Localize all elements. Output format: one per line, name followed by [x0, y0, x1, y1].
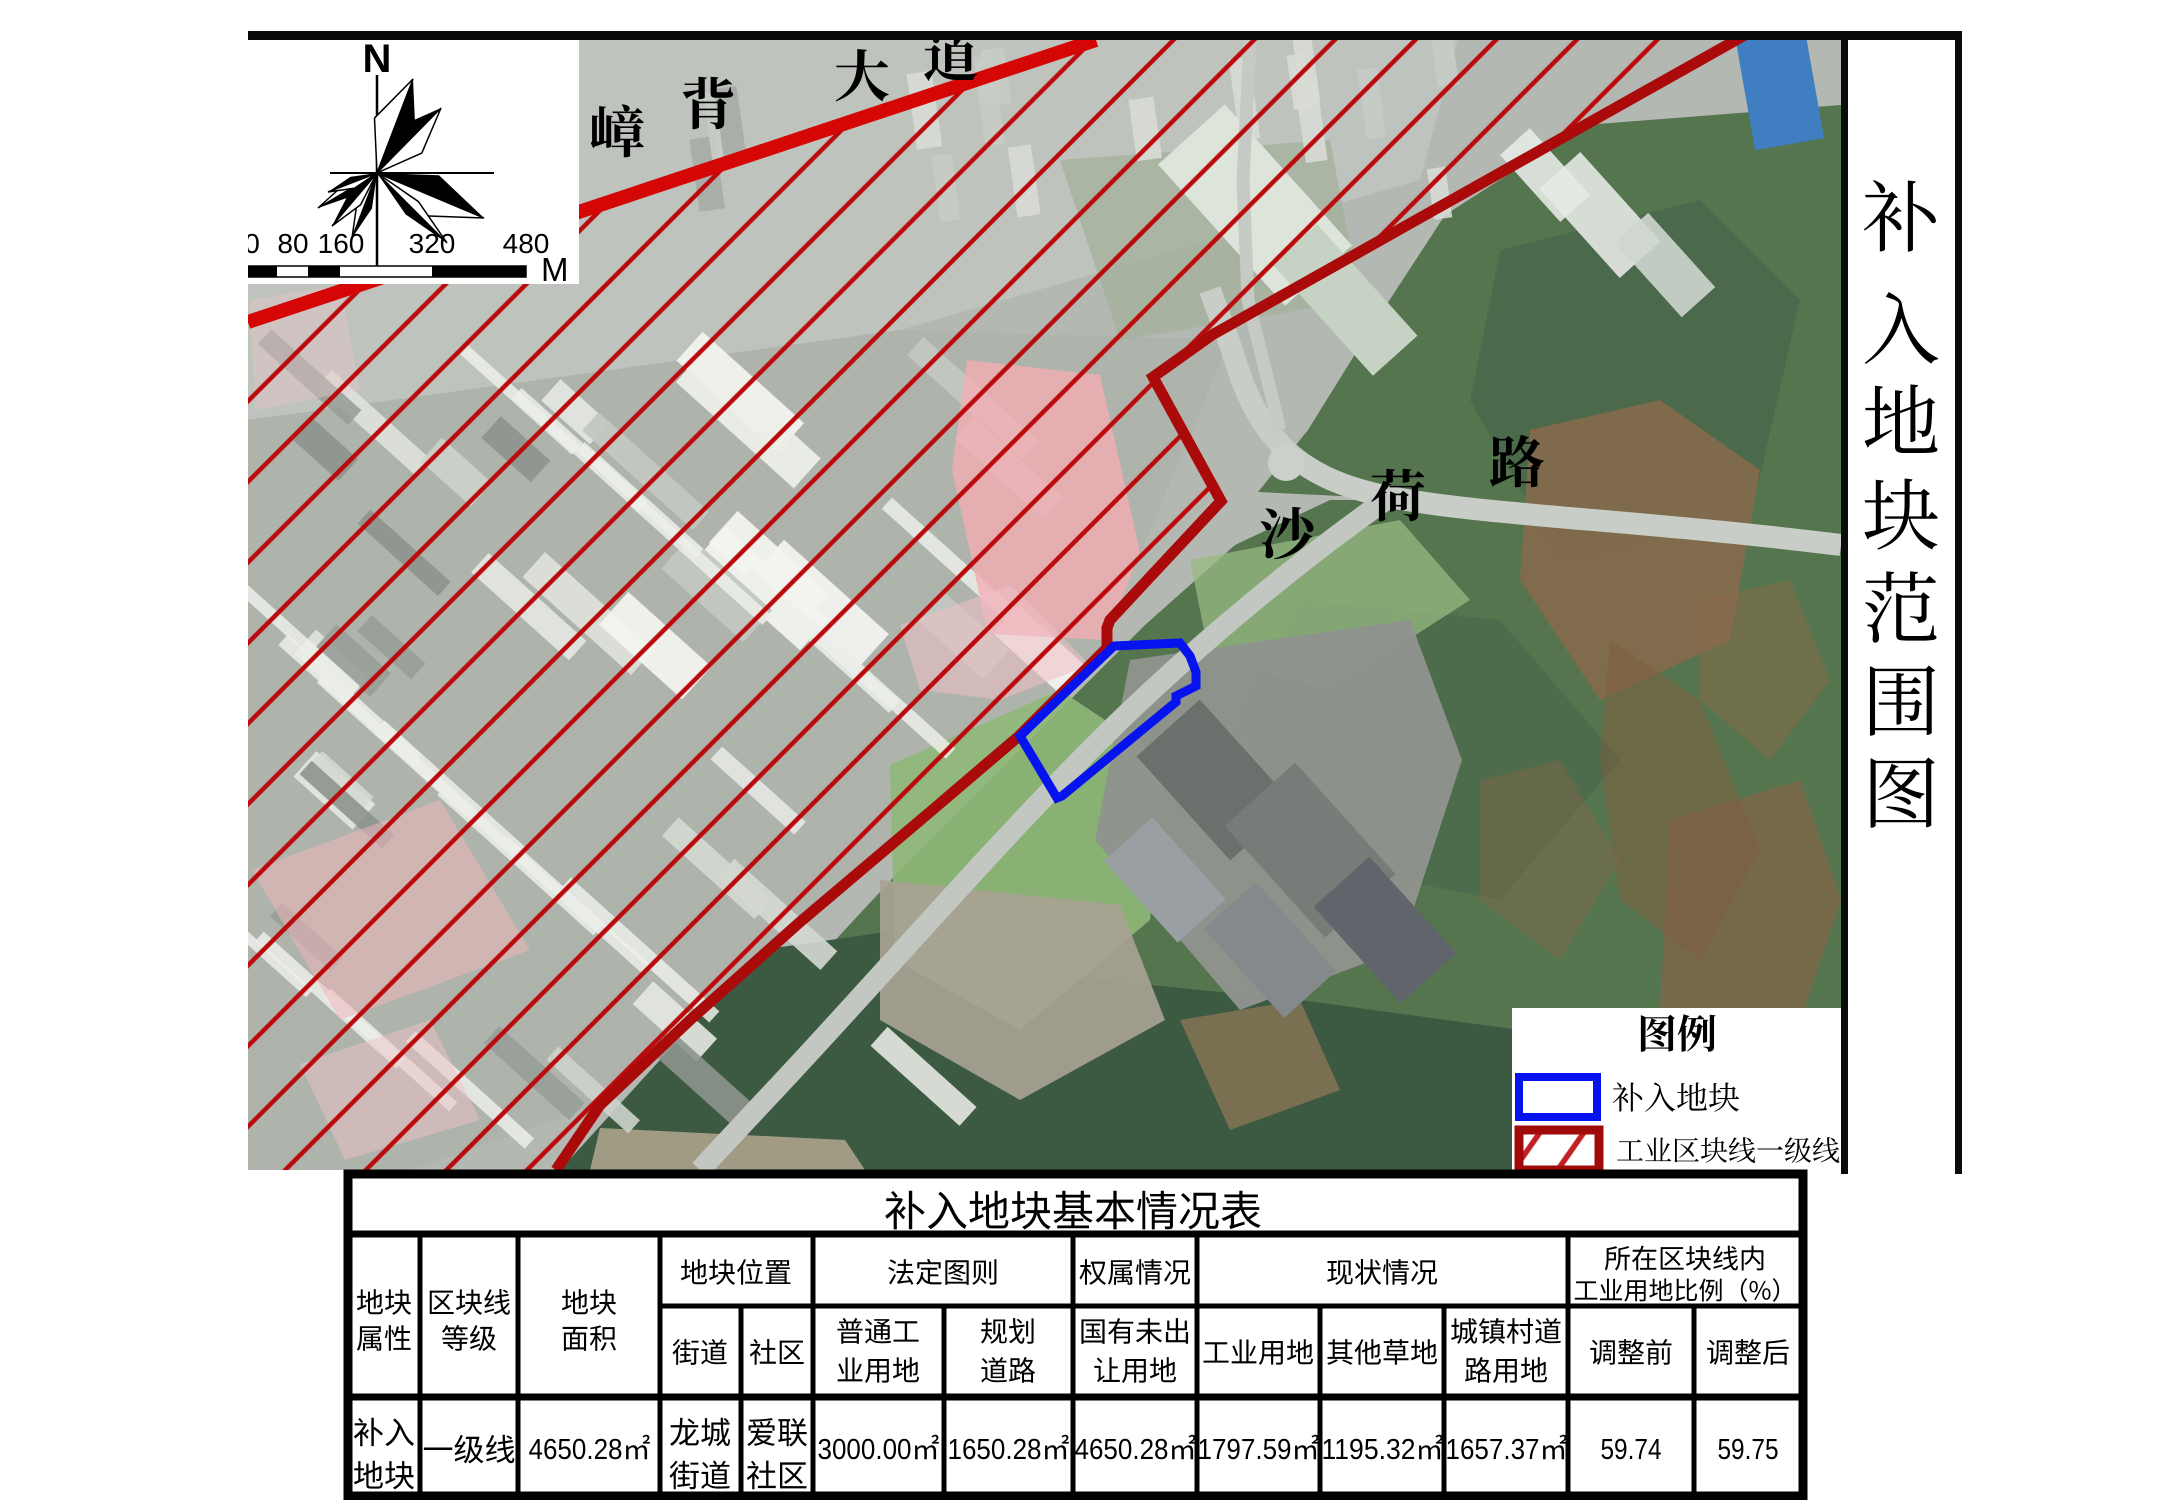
svg-text:N: N [363, 37, 392, 81]
svg-text:160: 160 [318, 228, 365, 259]
svg-text:320: 320 [409, 228, 456, 259]
svg-text:3000.00: 3000.00 [818, 1434, 912, 1466]
svg-text:59.75: 59.75 [1718, 1434, 1779, 1466]
svg-text:1650.28: 1650.28 [948, 1434, 1042, 1466]
svg-text:1195.32: 1195.32 [1322, 1434, 1416, 1466]
svg-text:4650.28: 4650.28 [1075, 1434, 1169, 1466]
svg-text:4650.28: 4650.28 [529, 1434, 623, 1466]
svg-text:59.74: 59.74 [1601, 1434, 1662, 1466]
svg-text:1657.37: 1657.37 [1446, 1434, 1540, 1466]
svg-text:1797.59: 1797.59 [1198, 1434, 1292, 1466]
svg-text:80: 80 [277, 228, 308, 259]
svg-text:M: M [541, 251, 569, 288]
